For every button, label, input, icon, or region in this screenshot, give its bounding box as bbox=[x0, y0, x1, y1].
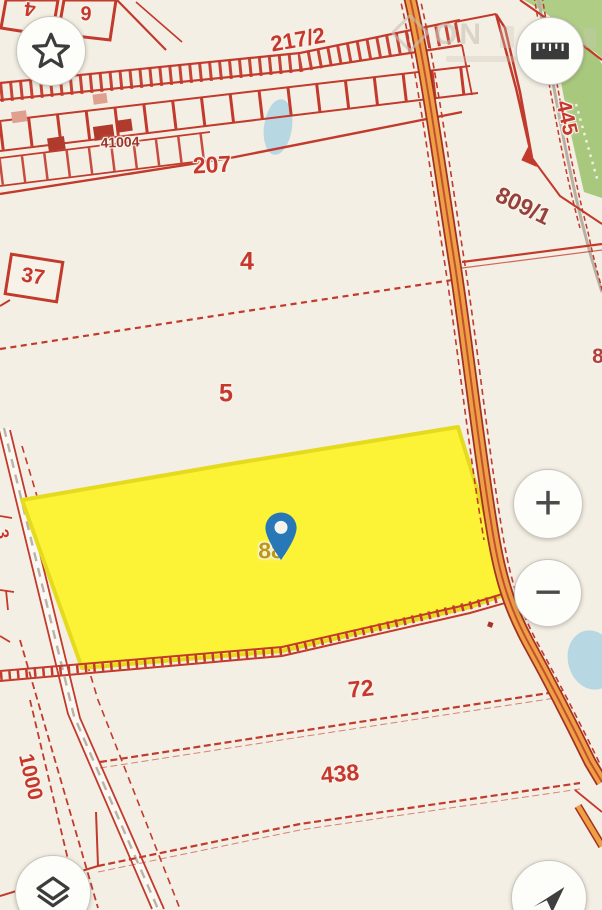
measure-button[interactable] bbox=[516, 17, 584, 85]
minus-icon: − bbox=[534, 569, 562, 617]
map-pin-icon[interactable] bbox=[264, 512, 298, 569]
favorites-button[interactable] bbox=[16, 16, 86, 86]
map-view: ON 46217/244541004207809/137458887243810… bbox=[0, 0, 602, 910]
navigation-arrow-icon bbox=[527, 876, 571, 910]
star-icon bbox=[30, 30, 72, 72]
zoom-in-button[interactable]: + bbox=[513, 469, 583, 539]
layers-icon bbox=[30, 870, 76, 910]
ruler-icon bbox=[529, 30, 571, 72]
plus-icon: + bbox=[534, 480, 562, 528]
cadastral-map[interactable] bbox=[0, 0, 602, 910]
zoom-out-button[interactable]: − bbox=[514, 559, 582, 627]
